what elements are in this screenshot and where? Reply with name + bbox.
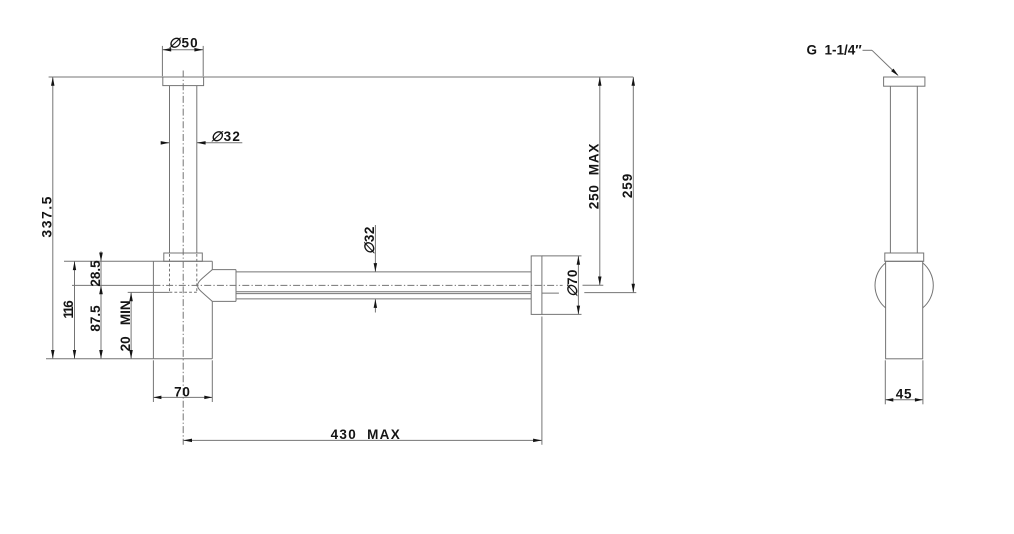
svg-text:∅70: ∅70: [565, 269, 580, 297]
svg-text:250 MAX: 250 MAX: [587, 143, 602, 209]
svg-text:430 MAX: 430 MAX: [331, 427, 401, 442]
svg-text:∅50: ∅50: [169, 36, 199, 51]
svg-text:28.5: 28.5: [88, 260, 103, 287]
svg-text:∅32: ∅32: [211, 129, 241, 144]
svg-text:70: 70: [174, 384, 191, 399]
svg-text:G 1-1/4″: G 1-1/4″: [807, 43, 863, 58]
svg-text:45: 45: [896, 386, 913, 401]
svg-text:337.5: 337.5: [38, 195, 54, 238]
svg-text:259: 259: [620, 173, 635, 198]
svg-text:87.5: 87.5: [88, 305, 103, 332]
svg-text:20 MIN: 20 MIN: [118, 300, 133, 351]
svg-text:∅32: ∅32: [362, 226, 377, 254]
svg-text:116: 116: [61, 300, 76, 319]
